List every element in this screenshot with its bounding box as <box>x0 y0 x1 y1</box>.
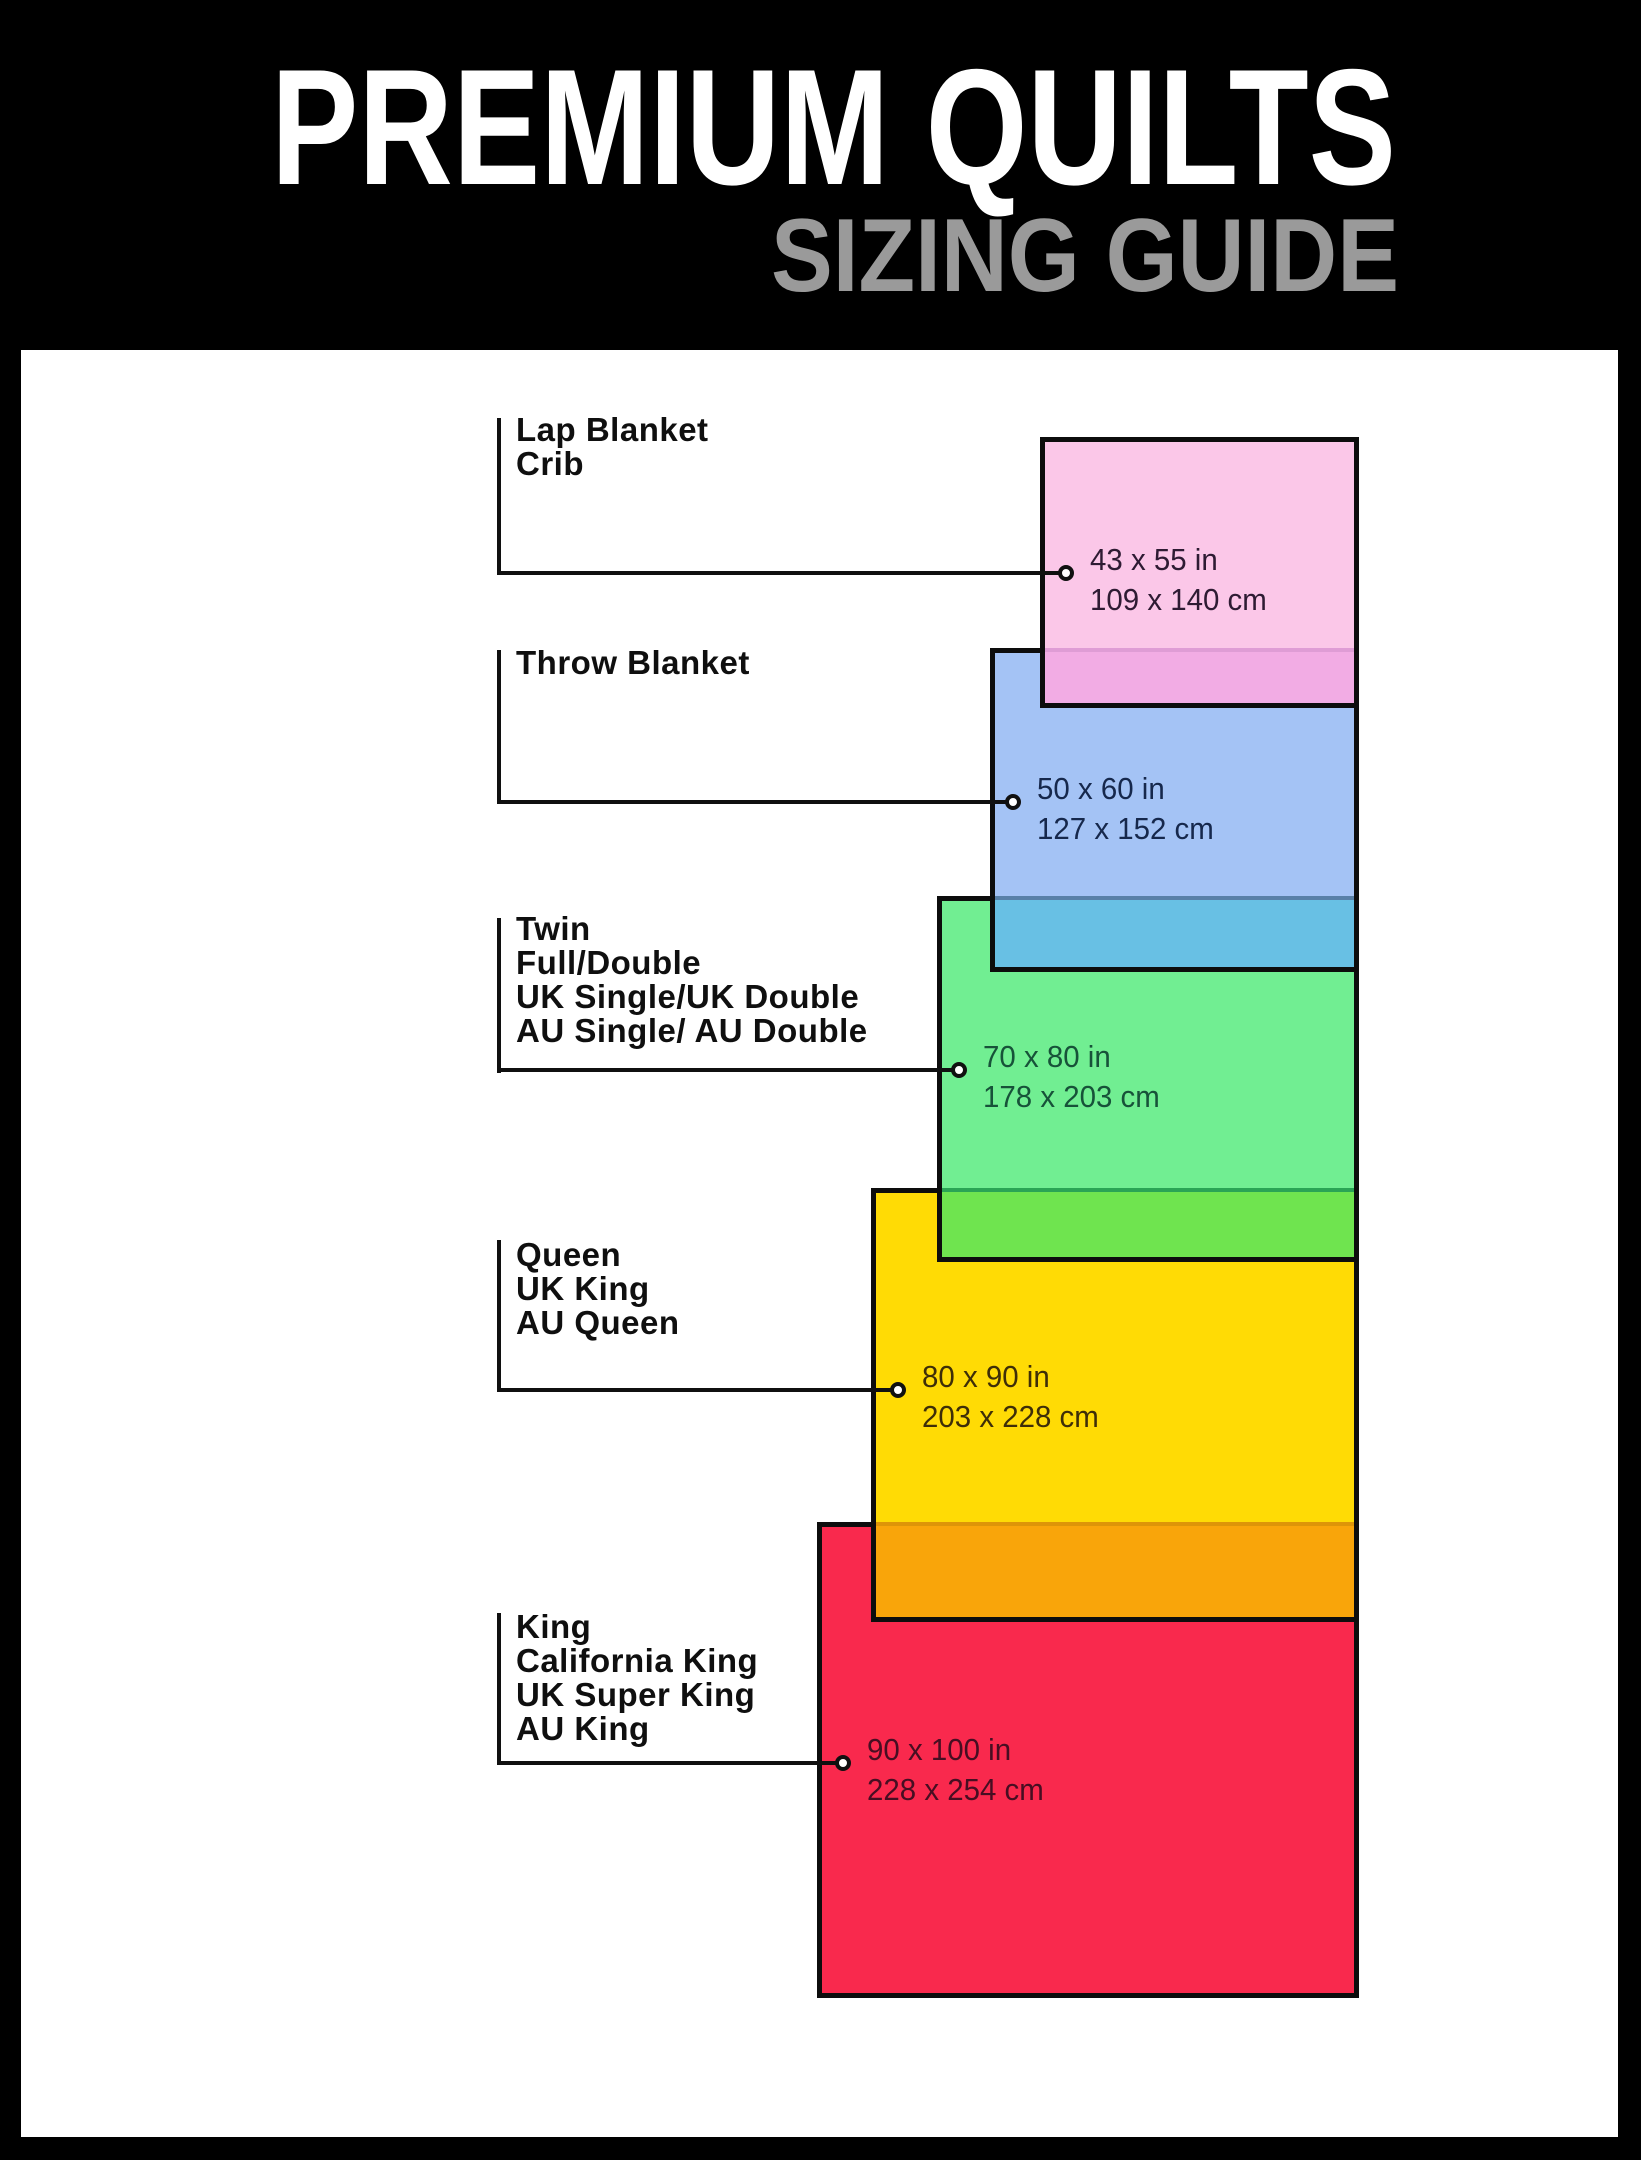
label-queen: Queen UK King AU Queen <box>516 1238 680 1340</box>
dimension-inches: 50 x 60 in <box>1037 769 1214 809</box>
dimensions-king: 90 x 100 in 228 x 254 cm <box>867 1730 1044 1810</box>
label-lap-blanket: Lap Blanket Crib <box>516 413 709 481</box>
quilt-sizing-infographic: { "header": { "title": "PREMIUM QUILTS",… <box>0 0 1641 2160</box>
dimensions-twin: 70 x 80 in 178 x 203 cm <box>983 1037 1160 1117</box>
label-line: Twin <box>516 912 868 946</box>
callout-hline-lap <box>497 571 1066 575</box>
callout-vline-king <box>497 1613 501 1765</box>
dimension-inches: 43 x 55 in <box>1090 540 1267 580</box>
callout-hline-king <box>497 1761 843 1765</box>
callout-dot-king <box>835 1755 851 1771</box>
label-line: AU Queen <box>516 1306 680 1340</box>
label-line: UK Single/UK Double <box>516 980 868 1014</box>
dimensions-lap: 43 x 55 in 109 x 140 cm <box>1090 540 1267 620</box>
label-line: AU King <box>516 1712 758 1746</box>
label-line: California King <box>516 1644 758 1678</box>
dimension-cm: 127 x 152 cm <box>1037 809 1214 849</box>
callout-dot-twin <box>951 1062 967 1078</box>
page-subtitle: SIZING GUIDE <box>771 198 1399 314</box>
callout-hline-throw <box>497 800 1013 804</box>
dimension-cm: 203 x 228 cm <box>922 1397 1099 1437</box>
callout-dot-lap <box>1058 565 1074 581</box>
label-line: Queen <box>516 1238 680 1272</box>
callout-vline-queen <box>497 1240 501 1392</box>
label-line: UK Super King <box>516 1678 758 1712</box>
dimension-inches: 70 x 80 in <box>983 1037 1160 1077</box>
callout-hline-twin <box>497 1068 959 1072</box>
callout-dot-queen <box>890 1382 906 1398</box>
overlap-band-queen-over-king <box>876 1522 1354 1617</box>
dimension-cm: 109 x 140 cm <box>1090 580 1267 620</box>
overlap-band-throw-over-twin <box>995 896 1354 967</box>
callout-dot-throw <box>1005 794 1021 810</box>
callout-vline-throw <box>497 650 501 804</box>
label-line: Crib <box>516 447 709 481</box>
label-twin: Twin Full/Double UK Single/UK Double AU … <box>516 912 868 1048</box>
dimensions-queen: 80 x 90 in 203 x 228 cm <box>922 1357 1099 1437</box>
page-title: PREMIUM QUILTS <box>271 35 1396 219</box>
dimension-inches: 90 x 100 in <box>867 1730 1044 1770</box>
label-line: Throw Blanket <box>516 646 750 680</box>
label-king: King California King UK Super King AU Ki… <box>516 1610 758 1746</box>
label-line: Lap Blanket <box>516 413 709 447</box>
dimension-cm: 228 x 254 cm <box>867 1770 1044 1810</box>
dimension-cm: 178 x 203 cm <box>983 1077 1160 1117</box>
overlap-band-twin-over-queen <box>942 1188 1354 1257</box>
label-throw-blanket: Throw Blanket <box>516 646 750 680</box>
callout-hline-queen <box>497 1388 898 1392</box>
label-line: UK King <box>516 1272 680 1306</box>
label-line: Full/Double <box>516 946 868 980</box>
callout-vline-lap <box>497 418 501 575</box>
dimensions-throw: 50 x 60 in 127 x 152 cm <box>1037 769 1214 849</box>
label-line: AU Single/ AU Double <box>516 1014 868 1048</box>
header: PREMIUM QUILTS SIZING GUIDE <box>0 0 1641 350</box>
dimension-inches: 80 x 90 in <box>922 1357 1099 1397</box>
callout-vline-twin <box>497 918 501 1073</box>
label-line: King <box>516 1610 758 1644</box>
overlap-band-lap-over-throw <box>1045 648 1354 703</box>
